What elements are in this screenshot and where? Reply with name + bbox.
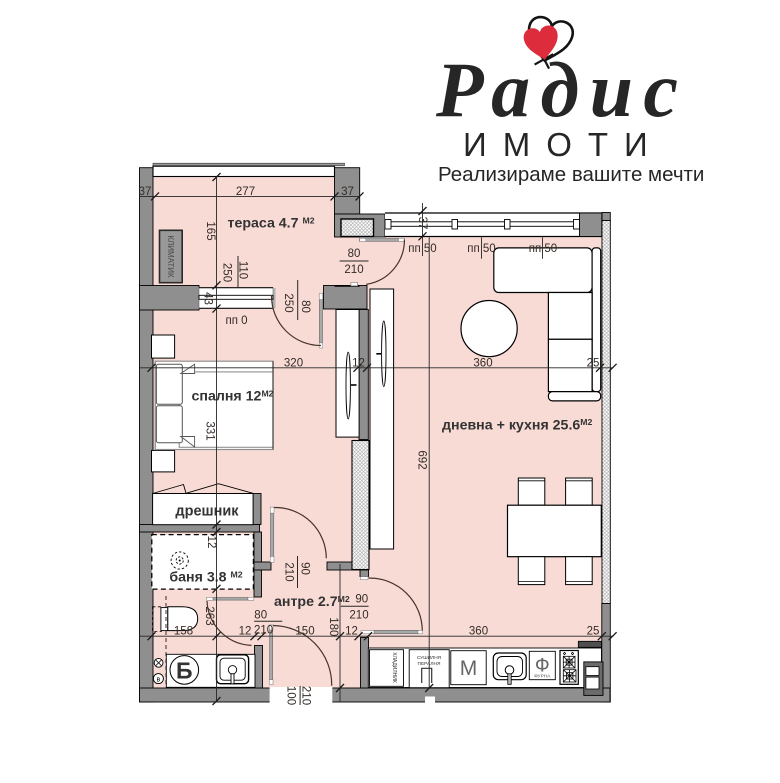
svg-text:в: в bbox=[157, 676, 161, 683]
svg-text:210: 210 bbox=[349, 610, 368, 622]
svg-text:12: 12 bbox=[352, 357, 365, 369]
svg-text:М: М bbox=[460, 657, 478, 680]
svg-text:Б: Б bbox=[176, 658, 193, 684]
svg-text:250: 250 bbox=[282, 293, 294, 312]
svg-text:150: 150 bbox=[295, 625, 314, 637]
svg-text:дрешник: дрешник bbox=[175, 503, 239, 519]
svg-text:263: 263 bbox=[203, 606, 215, 625]
svg-text:320: 320 bbox=[284, 357, 303, 369]
svg-text:277: 277 bbox=[236, 186, 255, 198]
svg-text:180: 180 bbox=[327, 617, 339, 636]
svg-text:43: 43 bbox=[201, 292, 213, 305]
svg-text:165: 165 bbox=[204, 221, 216, 240]
svg-text:пп 50: пп 50 bbox=[467, 243, 495, 255]
svg-text:пп 0: пп 0 bbox=[225, 315, 247, 327]
svg-text:100: 100 bbox=[284, 686, 296, 705]
svg-text:дневна + кухня 25.6М2: дневна + кухня 25.6М2 bbox=[442, 417, 593, 433]
svg-text:90: 90 bbox=[298, 562, 310, 575]
svg-text:ХЛАДИЛНИК: ХЛАДИЛНИК bbox=[391, 652, 397, 683]
svg-text:12: 12 bbox=[239, 625, 252, 637]
svg-text:80: 80 bbox=[299, 300, 311, 313]
svg-text:37: 37 bbox=[341, 186, 354, 198]
svg-text:90: 90 bbox=[355, 594, 368, 606]
svg-text:692: 692 bbox=[415, 450, 427, 469]
svg-text:25: 25 bbox=[587, 357, 600, 369]
svg-text:КЛИМАТИК: КЛИМАТИК bbox=[166, 235, 175, 278]
svg-text:тераса 4.7 М2: тераса 4.7 М2 bbox=[228, 215, 315, 231]
svg-text:110: 110 bbox=[236, 261, 248, 279]
svg-text:331: 331 bbox=[204, 421, 216, 440]
svg-text:210: 210 bbox=[344, 264, 363, 276]
svg-text:37: 37 bbox=[139, 186, 152, 198]
svg-text:250: 250 bbox=[220, 263, 232, 282]
svg-text:пп 50: пп 50 bbox=[529, 243, 557, 255]
svg-text:25: 25 bbox=[587, 625, 600, 637]
svg-text:210: 210 bbox=[254, 625, 273, 637]
svg-text:12: 12 bbox=[345, 625, 358, 637]
svg-text:360: 360 bbox=[469, 625, 488, 637]
svg-text:ИМОТИ: ИМОТИ bbox=[463, 126, 664, 163]
svg-text:пп 50: пп 50 bbox=[408, 243, 436, 255]
svg-text:12: 12 bbox=[205, 536, 217, 549]
svg-text:37: 37 bbox=[416, 217, 428, 230]
svg-text:80: 80 bbox=[254, 610, 267, 622]
svg-text:спалня 12М2: спалня 12М2 bbox=[192, 388, 274, 404]
svg-text:360: 360 bbox=[473, 357, 492, 369]
svg-text:210: 210 bbox=[299, 686, 311, 705]
svg-text:80: 80 bbox=[348, 248, 361, 260]
svg-text:ФУРНА: ФУРНА bbox=[534, 674, 551, 680]
svg-text:210: 210 bbox=[282, 562, 294, 581]
svg-text:158: 158 bbox=[174, 625, 193, 637]
svg-text:Ф: Ф bbox=[535, 655, 550, 677]
svg-text:Реализираме вашите мечти: Реализираме вашите мечти bbox=[438, 163, 704, 186]
